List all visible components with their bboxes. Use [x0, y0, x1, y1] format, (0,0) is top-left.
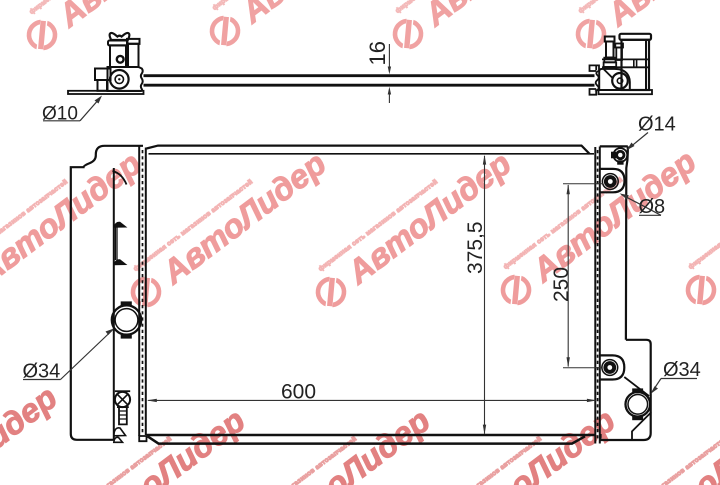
svg-text:16: 16 — [365, 41, 390, 65]
svg-text:250: 250 — [550, 267, 573, 302]
svg-text:Ø34: Ø34 — [663, 359, 701, 381]
svg-text:Ø10: Ø10 — [42, 104, 78, 125]
svg-text:Ø14: Ø14 — [638, 114, 676, 136]
svg-text:600: 600 — [281, 381, 316, 404]
svg-text:375,5: 375,5 — [464, 221, 487, 274]
